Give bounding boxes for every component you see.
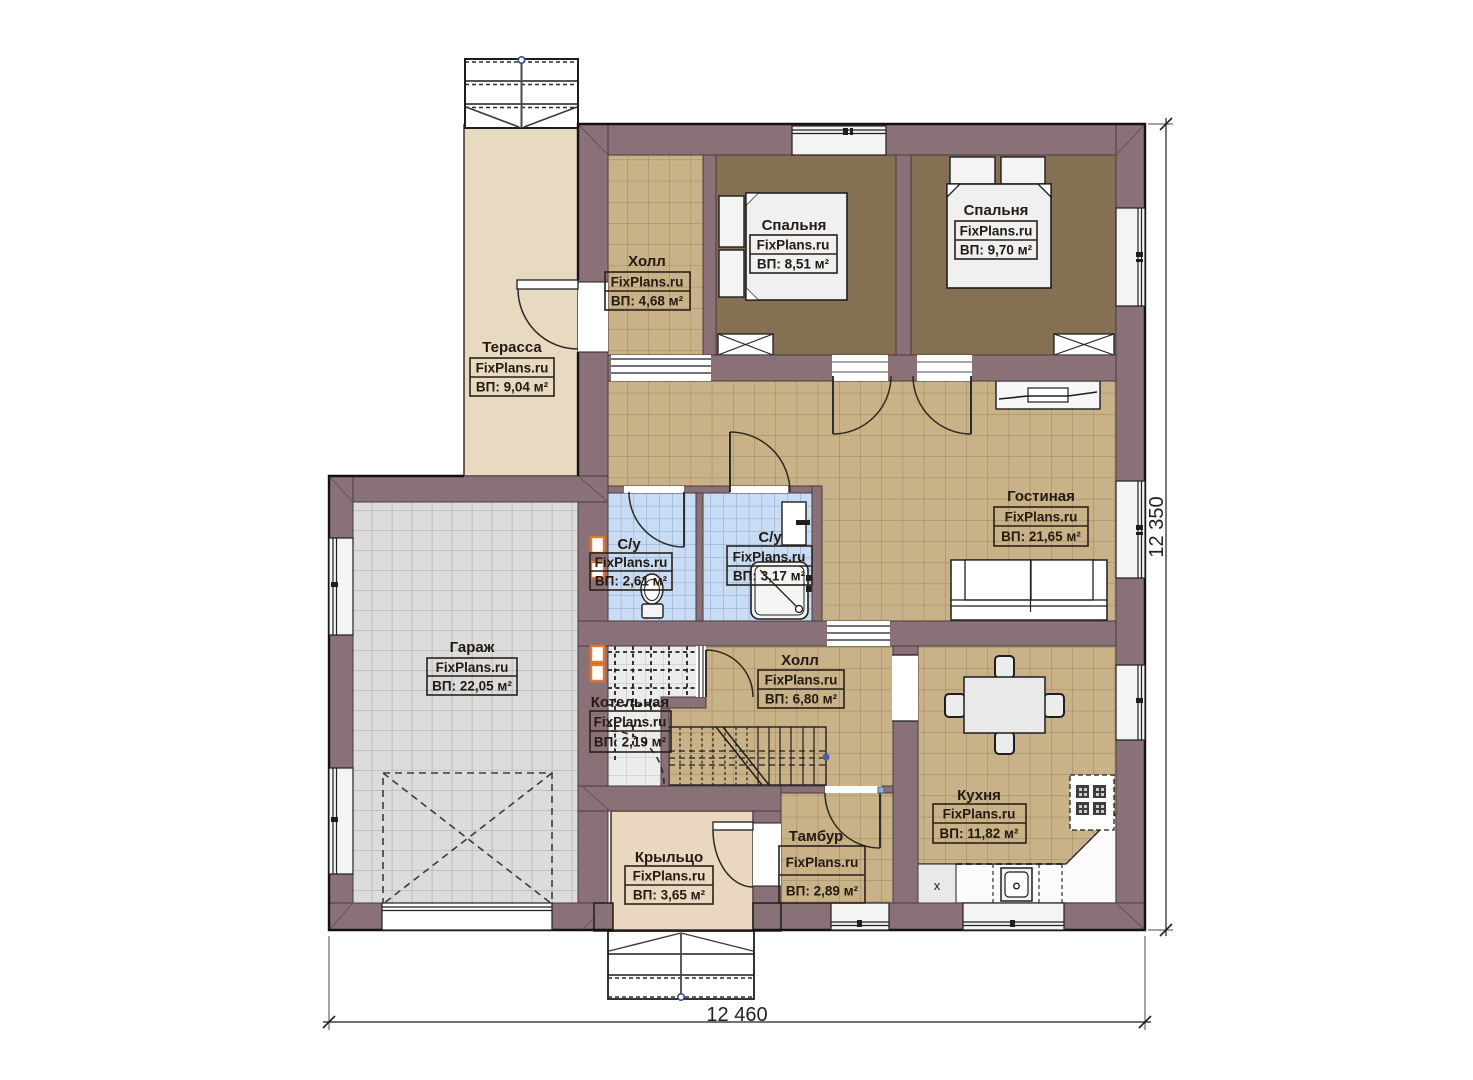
svg-text:Терасса: Терасса	[482, 339, 542, 356]
svg-text:ВП: 8,51 м²: ВП: 8,51 м²	[757, 257, 830, 272]
svg-text:FixPlans.ru: FixPlans.ru	[476, 361, 549, 376]
svg-text:FixPlans.ru: FixPlans.ru	[943, 807, 1016, 822]
svg-text:ВП: 2,61 м²: ВП: 2,61 м²	[595, 574, 668, 589]
svg-text:ВП: 22,05 м²: ВП: 22,05 м²	[432, 679, 512, 694]
svg-text:FixPlans.ru: FixPlans.ru	[757, 238, 830, 253]
svg-text:С/у: С/у	[617, 536, 641, 553]
svg-text:FixPlans.ru: FixPlans.ru	[765, 673, 838, 688]
svg-text:ВП: 4,68 м²: ВП: 4,68 м²	[611, 294, 684, 309]
svg-text:Котельная: Котельная	[591, 694, 670, 711]
svg-text:ВП: 9,04 м²: ВП: 9,04 м²	[476, 380, 549, 395]
svg-text:Гараж: Гараж	[450, 639, 495, 656]
svg-text:ВП: 11,82 м²: ВП: 11,82 м²	[940, 826, 1019, 841]
svg-text:ВП: 6,80 м²: ВП: 6,80 м²	[765, 692, 838, 707]
svg-text:FixPlans.ru: FixPlans.ru	[595, 555, 668, 570]
svg-text:12 350: 12 350	[1146, 496, 1168, 557]
svg-text:Крыльцо: Крыльцо	[635, 849, 703, 866]
svg-text:С/у: С/у	[758, 529, 782, 546]
svg-text:FixPlans.ru: FixPlans.ru	[733, 550, 806, 565]
svg-text:ВП: 2,19 м²: ВП: 2,19 м²	[594, 735, 667, 750]
svg-text:FixPlans.ru: FixPlans.ru	[436, 660, 509, 675]
svg-text:FixPlans.ru: FixPlans.ru	[786, 855, 859, 870]
svg-text:FixPlans.ru: FixPlans.ru	[611, 275, 684, 290]
svg-text:Холл: Холл	[628, 253, 666, 270]
svg-text:FixPlans.ru: FixPlans.ru	[633, 869, 706, 884]
svg-text:Спальня: Спальня	[964, 202, 1029, 219]
svg-text:x: x	[934, 878, 941, 893]
svg-text:FixPlans.ru: FixPlans.ru	[1005, 510, 1078, 525]
svg-text:12 460: 12 460	[706, 1004, 767, 1026]
svg-text:ВП: 9,70 м²: ВП: 9,70 м²	[960, 243, 1033, 258]
svg-text:Спальня: Спальня	[762, 217, 827, 234]
svg-text:Кухня: Кухня	[957, 787, 1001, 804]
svg-text:FixPlans.ru: FixPlans.ru	[594, 715, 667, 730]
svg-text:Гостиная: Гостиная	[1007, 488, 1075, 505]
svg-text:ВП: 3,17 м²: ВП: 3,17 м²	[733, 569, 806, 584]
svg-text:Тамбур: Тамбур	[789, 828, 843, 845]
svg-text:ВП: 21,65 м²: ВП: 21,65 м²	[1001, 529, 1081, 544]
svg-text:ВП: 3,65 м²: ВП: 3,65 м²	[633, 888, 706, 903]
svg-text:FixPlans.ru: FixPlans.ru	[960, 224, 1033, 239]
svg-text:Холл: Холл	[781, 652, 819, 669]
svg-text:ВП: 2,89 м²: ВП: 2,89 м²	[786, 884, 859, 899]
